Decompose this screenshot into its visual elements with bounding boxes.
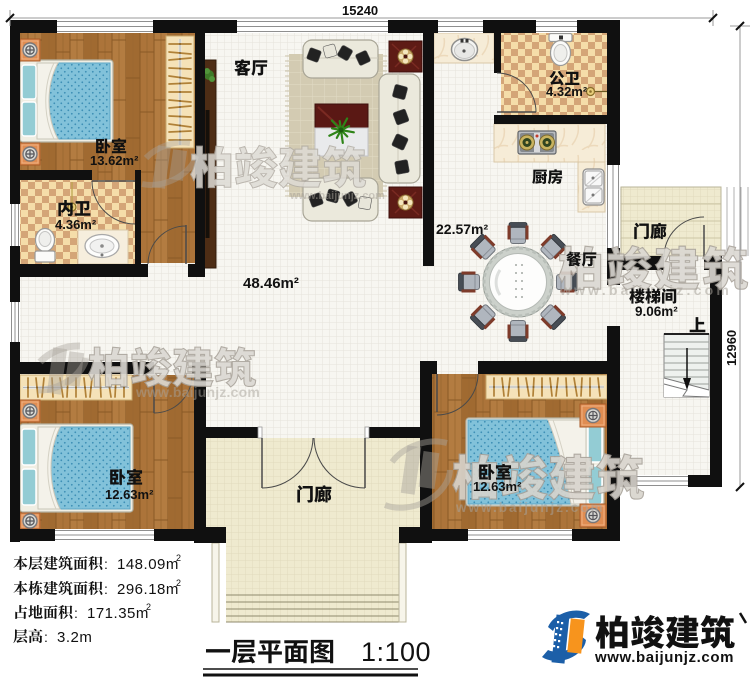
svg-text:12.63m²: 12.63m² bbox=[473, 479, 522, 494]
svg-text:1:100: 1:100 bbox=[361, 637, 431, 667]
svg-text:www.baijunjz.com: www.baijunjz.com bbox=[289, 190, 385, 202]
svg-text:www.baijunjz.com: www.baijunjz.com bbox=[594, 649, 734, 666]
svg-text:2: 2 bbox=[176, 578, 181, 588]
svg-text:171.35m: 171.35m bbox=[87, 605, 149, 622]
svg-text:9.06m²: 9.06m² bbox=[635, 304, 678, 319]
svg-text:15240: 15240 bbox=[342, 3, 378, 18]
svg-text:2: 2 bbox=[146, 602, 151, 612]
svg-text:22.57m²: 22.57m² bbox=[436, 221, 488, 237]
svg-text::: : bbox=[104, 556, 108, 572]
svg-text:2: 2 bbox=[176, 553, 181, 563]
svg-text:www.baijunjz.com: www.baijunjz.com bbox=[455, 500, 605, 515]
svg-text:www.baijunjz.com: www.baijunjz.com bbox=[135, 384, 260, 400]
svg-text:12960: 12960 bbox=[724, 330, 739, 366]
svg-text:3.2m: 3.2m bbox=[57, 629, 92, 646]
svg-text::: : bbox=[104, 581, 108, 597]
svg-text::: : bbox=[44, 629, 48, 645]
svg-text:296.18m: 296.18m bbox=[117, 581, 179, 598]
svg-text:12.63m²: 12.63m² bbox=[105, 487, 154, 502]
svg-text:48.46m²: 48.46m² bbox=[243, 275, 299, 292]
svg-text:www.baijunjz.com: www.baijunjz.com bbox=[559, 282, 732, 298]
svg-text:4.36m²: 4.36m² bbox=[55, 217, 97, 232]
svg-text:4.32m²: 4.32m² bbox=[546, 84, 588, 99]
svg-text:13.62m²: 13.62m² bbox=[90, 153, 139, 168]
svg-text:148.09m: 148.09m bbox=[117, 556, 179, 573]
svg-text::: : bbox=[74, 605, 78, 621]
